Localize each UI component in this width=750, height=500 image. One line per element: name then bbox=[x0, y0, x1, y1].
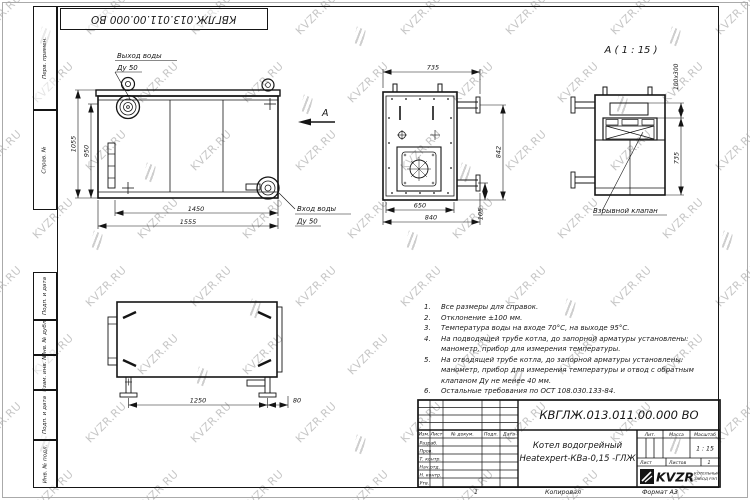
side-cell-label: Справ. № bbox=[42, 146, 48, 173]
header-mass: Масса bbox=[669, 432, 684, 438]
note-item: 4.На подводящей трубе котла, до запорной… bbox=[424, 334, 716, 355]
side-cell-inv-dubl: Инв. № дубл. bbox=[33, 320, 57, 355]
row-tkontr: Т. контр. bbox=[420, 456, 441, 462]
dim-text-842: 842 bbox=[495, 146, 503, 158]
panel-bolts bbox=[388, 98, 452, 194]
dim-text-735-detail: 735 bbox=[673, 152, 681, 164]
rotated-designation-stamp: КВГЛЖ.013.011.00.000 ВО bbox=[60, 8, 268, 30]
dim-text-840: 840 bbox=[425, 214, 437, 222]
header-sheet: Лист bbox=[639, 460, 652, 466]
outlet-label-line2: Ду 50 bbox=[116, 64, 138, 72]
dim-text-1055: 1055 bbox=[70, 136, 78, 153]
row-prov: Пров. bbox=[420, 448, 433, 454]
company-logo-text: KVZR bbox=[656, 470, 694, 485]
pipe-top-right bbox=[457, 97, 480, 113]
dim-text-950: 950 bbox=[83, 145, 91, 157]
header-list: Лист bbox=[430, 432, 443, 438]
note-item: 6.Остальные требования по ОСТ 108.030.13… bbox=[424, 386, 716, 397]
footer-format-label: Формат А3 bbox=[642, 489, 678, 496]
explosion-valve bbox=[603, 103, 657, 140]
dim-text-105: 105 bbox=[477, 208, 485, 220]
side-cell-label: Инв. № подл. bbox=[42, 445, 48, 484]
note-number: 2. bbox=[424, 313, 433, 324]
lifting-lug-left bbox=[122, 78, 135, 91]
side-view: 735 842 650 840 105 bbox=[348, 48, 523, 238]
technical-notes: 1.Все размеры для справок. 2.Отклонение … bbox=[424, 302, 716, 397]
note-text: Остальные требования по ОСТ 108.030.133-… bbox=[441, 386, 716, 397]
dim-text-80: 80 bbox=[293, 397, 301, 405]
door-hinge-strip bbox=[108, 143, 115, 188]
support-legs bbox=[120, 377, 276, 397]
company-line1: КОТЕЛЬНЫЙ bbox=[694, 471, 719, 476]
corner-marks bbox=[123, 312, 271, 366]
company-logo bbox=[640, 469, 654, 484]
header-date: Дата bbox=[502, 432, 515, 438]
dim-text-1555: 1555 bbox=[180, 218, 197, 226]
dim-80 bbox=[268, 396, 289, 408]
note-number: 1. bbox=[424, 302, 433, 313]
note-text: На подводящей трубе котла, до запорной а… bbox=[441, 334, 716, 355]
row-nkontr: Н. контр. bbox=[420, 472, 442, 478]
dim-text-650: 650 bbox=[414, 202, 426, 210]
center-marks bbox=[122, 98, 276, 194]
note-item: 5.На отводящей трубе котла, до запорной … bbox=[424, 355, 716, 387]
view-a-arrow bbox=[298, 119, 335, 126]
detail-title: А ( 1 : 15 ) bbox=[604, 45, 658, 56]
inlet-label-line1: Вход воды bbox=[297, 205, 337, 213]
side-cell-inv-podl: Инв. № подл. bbox=[33, 440, 57, 488]
note-text: Отклонение ±100 мм. bbox=[441, 313, 716, 324]
header-doc: № докум. bbox=[450, 432, 474, 438]
header-sheets: Листов bbox=[668, 460, 686, 466]
water-inlet-flange bbox=[246, 177, 279, 199]
side-cell-sprav-no: Справ. № bbox=[33, 110, 57, 210]
side-cell-perv-primen: Перв. примен. bbox=[33, 6, 57, 110]
side-cell-label: Подп. и дата bbox=[42, 277, 48, 315]
pipe-bottom-right bbox=[457, 175, 480, 191]
view-a-letter: А bbox=[321, 108, 329, 119]
note-text: Все размеры для справок. bbox=[441, 302, 716, 313]
sheets-value: 1 bbox=[707, 460, 710, 466]
scale-value: 1 : 15 bbox=[696, 446, 714, 453]
row-razrab: Разраб. bbox=[420, 440, 438, 446]
row-utv: Утв. bbox=[420, 480, 430, 486]
rotated-designation-text: КВГЛЖ.013.011.00.000 ВО bbox=[91, 13, 236, 25]
dim-105 bbox=[478, 183, 488, 200]
titleblock-designation: КВГЛЖ.013.011.00.000 ВО bbox=[539, 408, 698, 422]
company-line2: ЗАВОД РЭП bbox=[694, 476, 717, 481]
inlet-label-line2: Ду 50 bbox=[296, 218, 318, 226]
lifting-lug-right bbox=[262, 79, 274, 91]
header-izm: Изм. bbox=[419, 432, 430, 438]
title-block: КВГЛЖ.013.011.00.000 ВО Изм. Лист № доку… bbox=[418, 398, 722, 492]
note-number: 6. bbox=[424, 386, 433, 397]
note-item: 3.Температура воды на входе 70°С, на вых… bbox=[424, 323, 716, 334]
side-cell-label: Инв. № дубл. bbox=[42, 318, 48, 356]
note-item: 2.Отклонение ±100 мм. bbox=[424, 313, 716, 324]
side-cell-label: Перв. примен. bbox=[42, 37, 48, 79]
header-scale: Масштаб bbox=[694, 432, 716, 438]
outlet-label-line1: Выход воды bbox=[117, 52, 162, 60]
burner-door bbox=[397, 147, 441, 191]
product-name-line1: Котел водогрейный bbox=[533, 441, 623, 451]
product-name-line2: Heatexpert-КВа-0,15 -ГЛЖ bbox=[519, 454, 636, 464]
note-text: Температура воды на входе 70°С, на выход… bbox=[441, 323, 716, 334]
dim-text-1250: 1250 bbox=[190, 397, 207, 405]
side-cell-podp-data-2: Подп. и дата bbox=[33, 390, 57, 440]
side-cell-label: Подп. и дата bbox=[42, 396, 48, 434]
dim-text-735-side: 735 bbox=[427, 64, 439, 72]
row-nachotd: Нач.отд. bbox=[420, 464, 441, 470]
valve-label: Взрывной клапан bbox=[593, 207, 658, 215]
header-sign: Подп. bbox=[484, 432, 498, 438]
side-cell-vzam-inv: Взам. инв. № bbox=[33, 355, 57, 390]
pipe-top-left bbox=[571, 97, 595, 113]
header-lit: Лит. bbox=[644, 432, 656, 438]
pipe-bottom-left bbox=[571, 172, 595, 188]
dim-735-side bbox=[383, 69, 480, 94]
dim-text-1450: 1450 bbox=[188, 205, 205, 213]
boiler-body-side bbox=[383, 84, 457, 200]
footer-page-mark: 1 bbox=[474, 489, 478, 496]
note-item: 1.Все размеры для справок. bbox=[424, 302, 716, 313]
water-outlet-flange bbox=[117, 96, 140, 119]
note-number: 3. bbox=[424, 323, 433, 334]
side-cell-label: Взам. инв. № bbox=[42, 354, 48, 392]
dim-100x300 bbox=[648, 103, 684, 118]
note-number: 5. bbox=[424, 355, 433, 387]
front-view: Выход воды Ду 50 Вход воды Ду 50 А 1055 … bbox=[58, 42, 358, 242]
top-view: 1250 80 bbox=[92, 288, 327, 418]
side-cell-podp-data-1: Подп. и дата bbox=[33, 272, 57, 320]
detail-view-a: А ( 1 : 15 ) 100x300 735 Взрывной клапан bbox=[548, 28, 748, 228]
note-number: 4. bbox=[424, 334, 433, 355]
note-text: На отводящей трубе котла, до запорной ар… bbox=[441, 355, 716, 387]
dim-text-100x300: 100x300 bbox=[673, 63, 680, 90]
footer-copied-label: Копировал bbox=[545, 489, 581, 496]
dim-1055 bbox=[75, 90, 98, 198]
